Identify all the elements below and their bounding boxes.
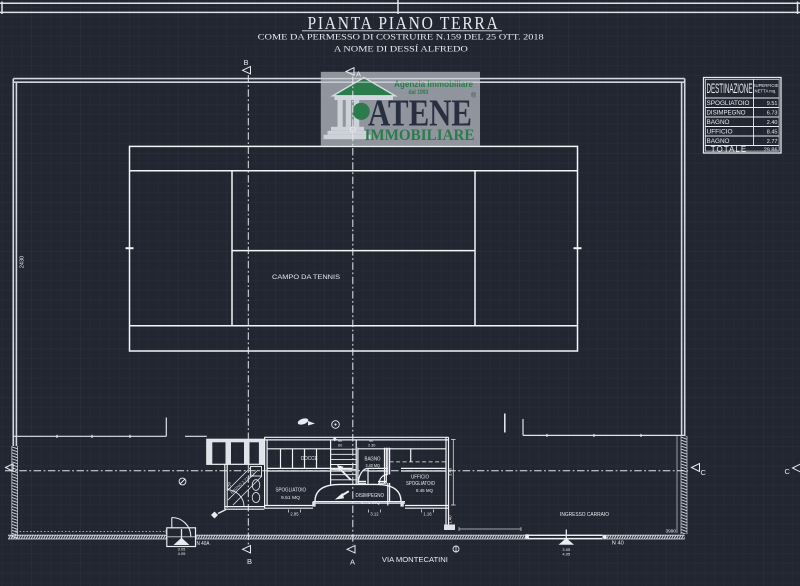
svg-text:90: 90 (369, 439, 373, 443)
svg-text:SPOGLIATOIO: SPOGLIATOIO (276, 488, 307, 494)
svg-text:3.12: 3.12 (370, 512, 379, 517)
svg-text:SUPERFICIE: SUPERFICIE (753, 83, 779, 88)
svg-text:29.86: 29.86 (764, 148, 778, 154)
svg-text:2.85: 2.85 (290, 512, 299, 517)
svg-text:DISIMPEGNO: DISIMPEGNO (707, 110, 746, 116)
svg-text:Agenzia Immobiliare: Agenzia Immobiliare (394, 79, 473, 90)
svg-text:CAMPO DA TENNIS: CAMPO DA TENNIS (272, 275, 340, 281)
svg-text:PIANTA PIANO TERRA: PIANTA PIANO TERRA (308, 13, 500, 33)
svg-text:IMMOBILIARE: IMMOBILIARE (365, 127, 475, 144)
svg-text:8.45: 8.45 (767, 129, 778, 135)
svg-text:4.05: 4.05 (562, 552, 571, 557)
svg-text:60: 60 (338, 444, 342, 448)
svg-text:NETTA mq.: NETTA mq. (755, 89, 777, 94)
svg-text:INGRESSO CARRAIO: INGRESSO CARRAIO (560, 512, 609, 518)
svg-text:B: B (247, 557, 252, 566)
svg-text:1.50: 1.50 (227, 481, 232, 490)
svg-text:dal 1993: dal 1993 (409, 90, 430, 96)
svg-text:3.40: 3.40 (448, 467, 453, 476)
svg-text:2.30: 2.30 (368, 444, 375, 448)
svg-text:4.05: 4.05 (178, 551, 187, 556)
svg-text:3990: 3990 (666, 528, 677, 533)
svg-text:TOTALE: TOTALE (711, 145, 747, 154)
svg-text:2.77: 2.77 (767, 139, 778, 145)
svg-text:A NOME DI DESSÍ ALFREDO: A NOME DI DESSÍ ALFREDO (334, 43, 468, 53)
svg-text:DOCCE: DOCCE (301, 456, 318, 462)
svg-text:A: A (350, 558, 355, 567)
svg-text:9.51 MQ: 9.51 MQ (281, 495, 300, 500)
svg-text:BAGNO: BAGNO (707, 139, 730, 145)
svg-text:UFFICIO: UFFICIO (411, 475, 429, 481)
svg-text:VIA MONTECATINI: VIA MONTECATINI (382, 557, 448, 564)
svg-text:1.40: 1.40 (448, 515, 453, 524)
svg-text:N 40: N 40 (612, 540, 624, 546)
svg-text:DISIMPEGNO: DISIMPEGNO (356, 493, 385, 499)
svg-text:2.40: 2.40 (767, 120, 778, 126)
svg-text:DESTINAZIONE: DESTINAZIONE (707, 81, 753, 96)
svg-text:C: C (785, 467, 791, 476)
svg-text:6.73: 6.73 (767, 110, 778, 116)
svg-text:8.45 MQ: 8.45 MQ (416, 488, 433, 493)
svg-text:B: B (243, 58, 248, 67)
svg-text:N 40A: N 40A (197, 541, 211, 547)
svg-text:C: C (701, 468, 707, 477)
svg-text:®: ® (471, 92, 477, 100)
svg-text:BAGNO: BAGNO (707, 120, 730, 126)
svg-text:9.51: 9.51 (767, 101, 778, 107)
svg-text:UFFICIO: UFFICIO (707, 129, 733, 135)
svg-text:6.73 MQ: 6.73 MQ (361, 500, 380, 505)
svg-text:BAGNO: BAGNO (365, 457, 381, 463)
svg-text:2.40 MQ: 2.40 MQ (366, 463, 381, 468)
svg-text:COME DA PERMESSO DI COSTRUIRE: COME DA PERMESSO DI COSTRUIRE N.159 DEL … (258, 32, 544, 42)
svg-text:90: 90 (338, 439, 342, 443)
svg-text:SPOGLIATOIO: SPOGLIATOIO (707, 101, 750, 107)
svg-text:2430: 2430 (20, 256, 26, 268)
svg-text:SPOGLIATOIO: SPOGLIATOIO (406, 481, 435, 487)
svg-text:1.16: 1.16 (423, 512, 432, 517)
svg-text:A: A (356, 70, 361, 79)
